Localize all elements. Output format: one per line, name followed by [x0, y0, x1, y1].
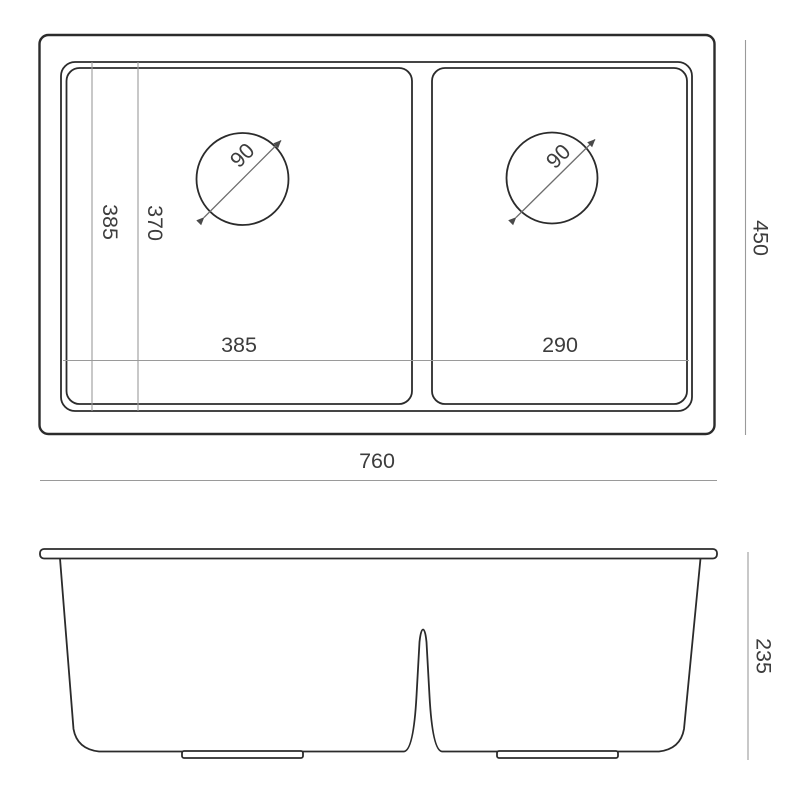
overall-depth-dimension: 450 — [746, 40, 773, 435]
rim-profile — [40, 549, 717, 559]
left-foot-pad — [182, 751, 303, 758]
label-left-bowl-width: 385 — [221, 333, 257, 357]
sink-technical-drawing: 385 370 90 90 385 290 760 450 — [0, 0, 800, 794]
right-foot-pad — [497, 751, 618, 758]
front-view: 235 — [40, 549, 776, 760]
overall-width-dimension: 760 — [40, 449, 717, 481]
label-overall-height: 235 — [752, 638, 776, 674]
label-overall-width: 760 — [359, 449, 395, 473]
label-overall-depth: 450 — [749, 220, 773, 256]
top-view: 385 370 90 90 385 290 — [40, 35, 715, 434]
drawing-canvas: 385 370 90 90 385 290 760 450 — [0, 0, 800, 794]
body-profile — [60, 559, 701, 752]
label-right-bowl-width: 290 — [542, 333, 578, 357]
label-bowl-depth-385: 385 — [98, 204, 122, 240]
label-bowl-depth-370: 370 — [143, 205, 167, 241]
